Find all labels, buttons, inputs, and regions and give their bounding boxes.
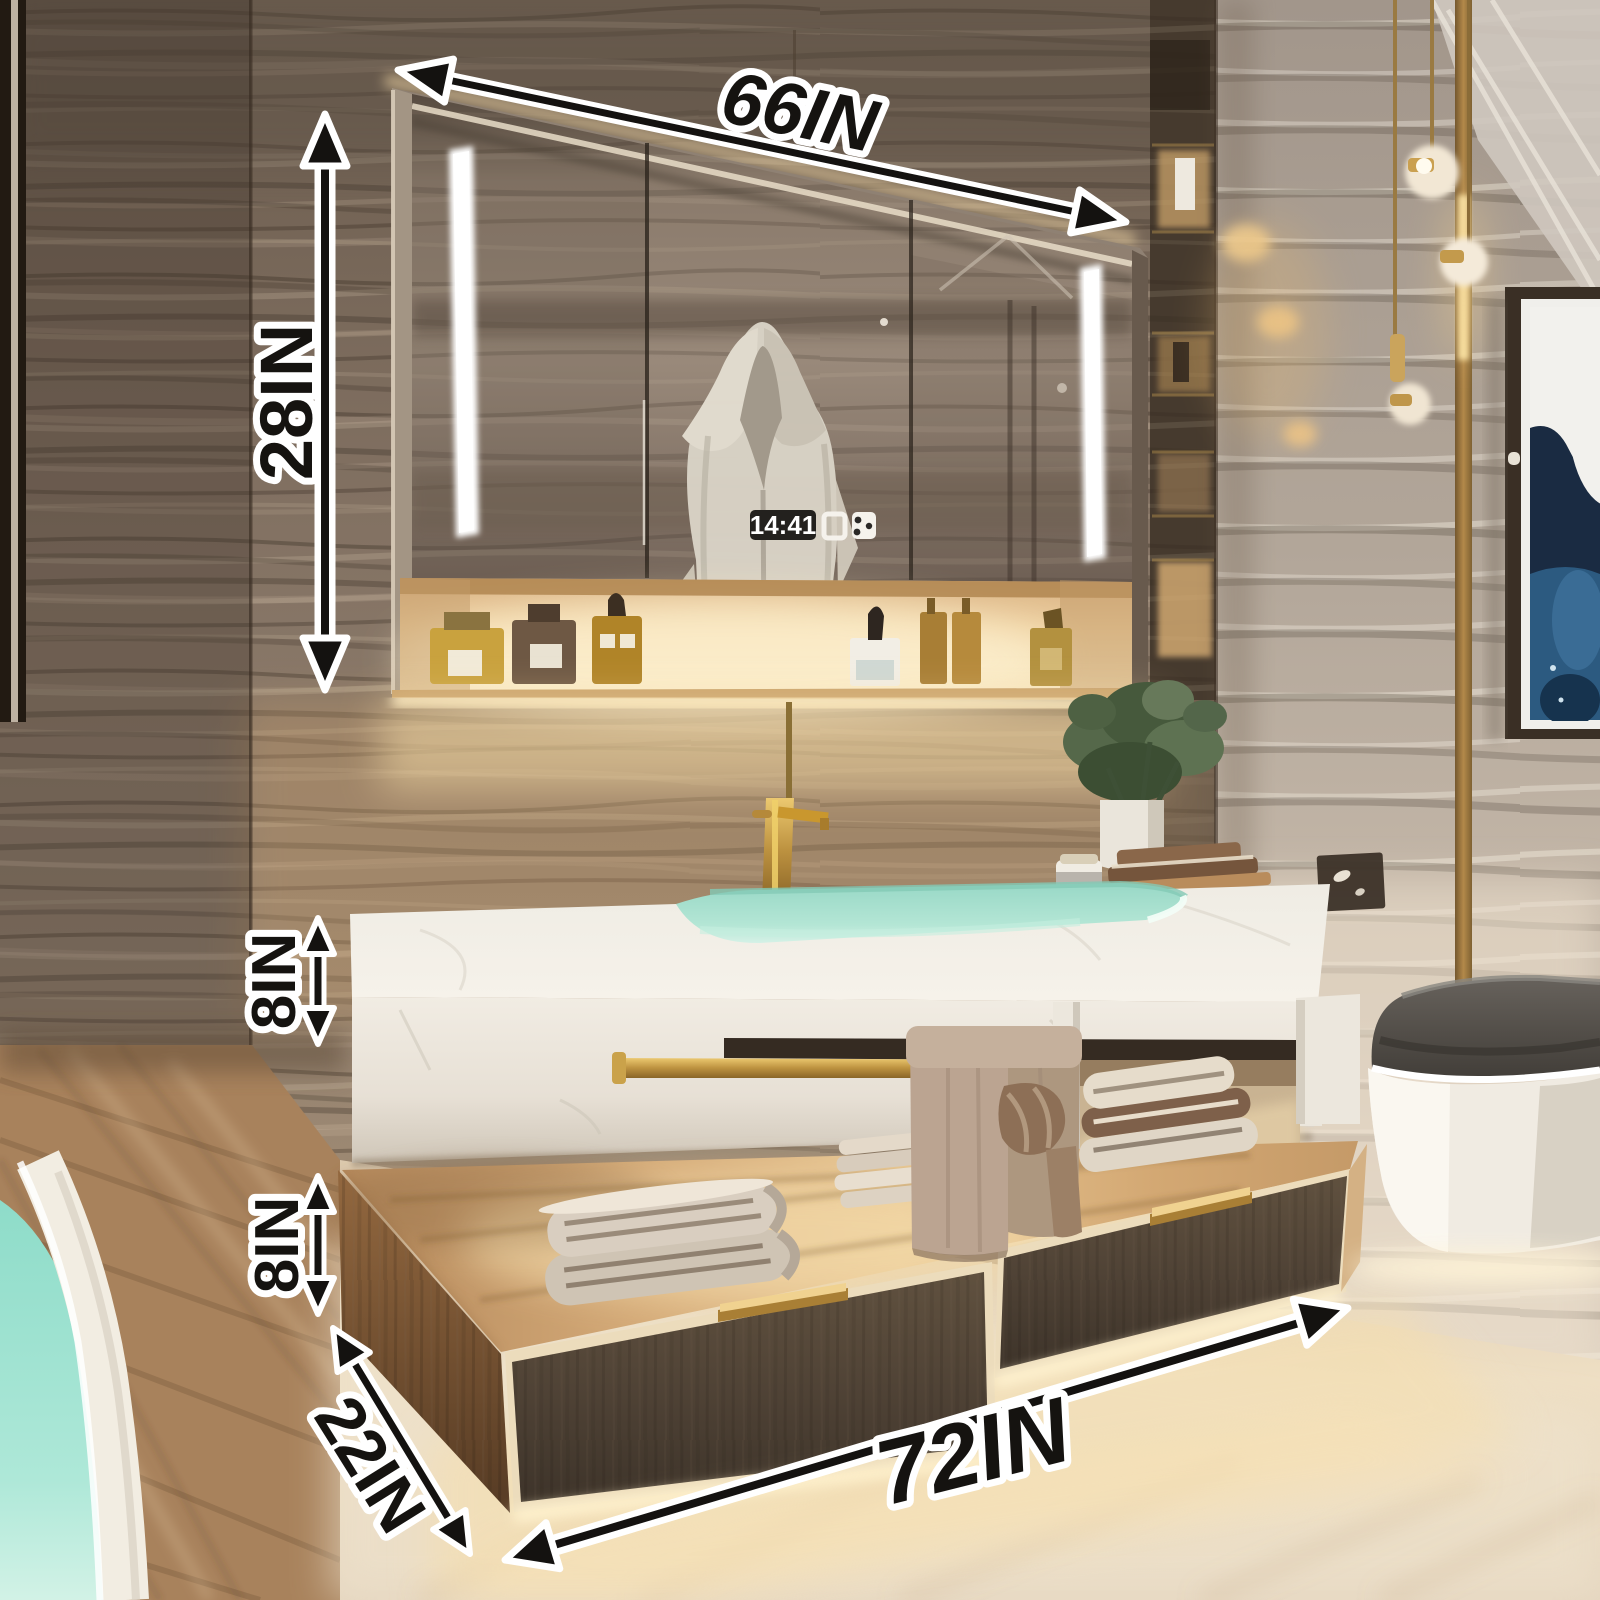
svg-text:14:41: 14:41 — [750, 510, 817, 540]
svg-text:8IN: 8IN — [243, 1197, 312, 1293]
svg-text:8IN: 8IN — [240, 933, 309, 1029]
svg-text:28IN: 28IN — [245, 324, 328, 480]
